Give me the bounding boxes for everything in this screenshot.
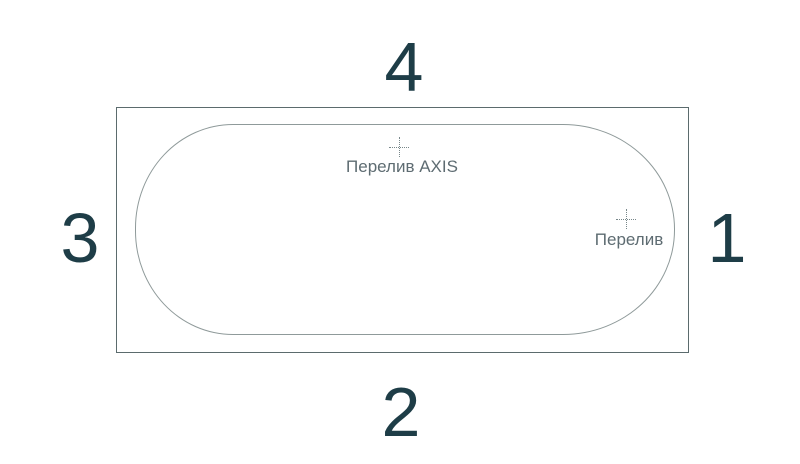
side-number-right: 1 [708, 203, 747, 273]
crosshair-icon [389, 137, 409, 157]
side-number-bottom: 2 [382, 377, 421, 447]
side-number-left: 3 [61, 203, 100, 273]
crosshair-icon [616, 209, 636, 229]
overflow-standard-label: Перелив [595, 231, 663, 248]
bathtub-diagram: 4 1 2 3 Перелив AXIS Перелив [0, 0, 800, 464]
overflow-axis-label: Перелив AXIS [346, 158, 458, 175]
side-number-top: 4 [385, 32, 424, 102]
